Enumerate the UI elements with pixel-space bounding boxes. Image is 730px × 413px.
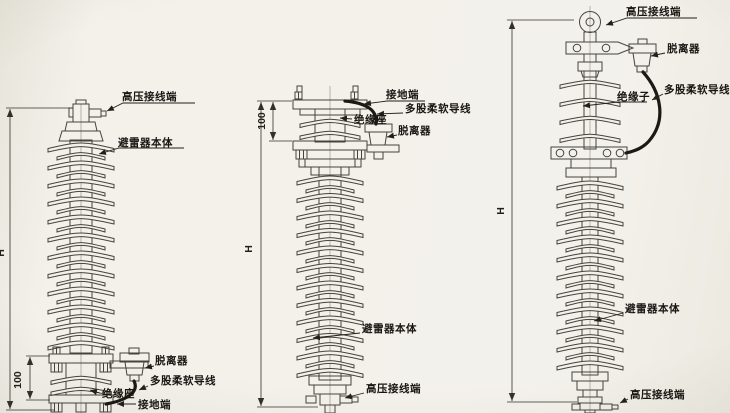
hv-terminal-fitting [306,376,358,413]
label-left-arrester-body: 避雷器本体 [117,136,173,149]
label-left-flexible-wire: 多股柔软导线 [150,374,216,387]
middle-height-dimension: H [243,101,318,407]
dim-label-h: H [0,249,7,257]
label-middle-insulating-base: 绝缘座 [354,113,387,126]
hv-terminal-fitting [69,100,106,122]
scanned-drawing-page: H 100 H 100 H [0,0,730,413]
label-middle-flexible-wire: 多股柔软导线 [405,102,471,115]
label-right-hv-terminal-top: 高压接线端 [626,5,681,18]
label-left-hv-terminal: 高压接线端 [122,90,177,103]
label-middle-disconnector: 脱离器 [398,124,431,137]
label-middle-hv-terminal: 高压接线端 [366,382,421,395]
label-right-insulator: 绝缘子 [617,90,650,103]
label-left-insulating-base: 绝缘座 [102,387,135,400]
label-right-disconnector: 脱离器 [667,42,700,55]
left-base-dimension: 100 [12,356,50,400]
label-left-ground-terminal: 接地端 [138,398,171,411]
label-middle-arrester-body: 避雷器本体 [361,322,417,335]
label-right-flexible-wire: 多股柔软导线 [664,83,730,96]
middle-bracket [551,147,627,177]
hv-terminal-fitting [572,372,618,413]
dim-label-100: 100 [12,371,24,389]
label-left-disconnector: 脱离器 [155,354,188,367]
middle-arrester-diagram [293,86,399,413]
dim-label-100: 100 [256,112,268,130]
disconnector-device [110,348,149,381]
flexible-ground-wire [626,72,660,153]
right-arrester-diagram [551,6,660,413]
label-right-hv-terminal-bottom: 高压接线端 [630,388,685,401]
dim-label-h: H [495,207,507,215]
label-middle-ground-terminal: 接地端 [386,88,419,101]
technical-drawing: H 100 H 100 H [0,0,730,413]
left-height-dimension: H [0,108,72,410]
crossarm-bracket [566,42,633,77]
dim-label-h: H [243,245,255,253]
label-right-arrester-body: 避雷器本体 [624,302,680,315]
right-height-dimension: H [495,20,577,402]
